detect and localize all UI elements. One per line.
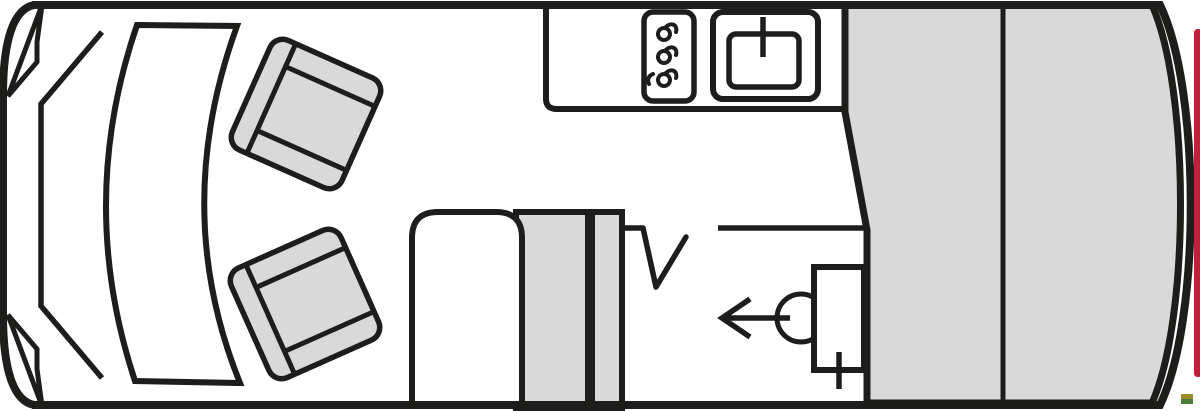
red-accent-strip (1194, 29, 1200, 377)
tall-cabinet (516, 212, 622, 408)
rear-bed (845, 5, 1181, 403)
side-bench (412, 212, 522, 409)
logo-mark-bottom (1181, 399, 1193, 404)
campervan-floorplan (0, 0, 1200, 411)
floorplan-canvas (0, 0, 1200, 411)
cabinet-divider (585, 212, 595, 408)
logo-mark-top (1181, 394, 1193, 399)
